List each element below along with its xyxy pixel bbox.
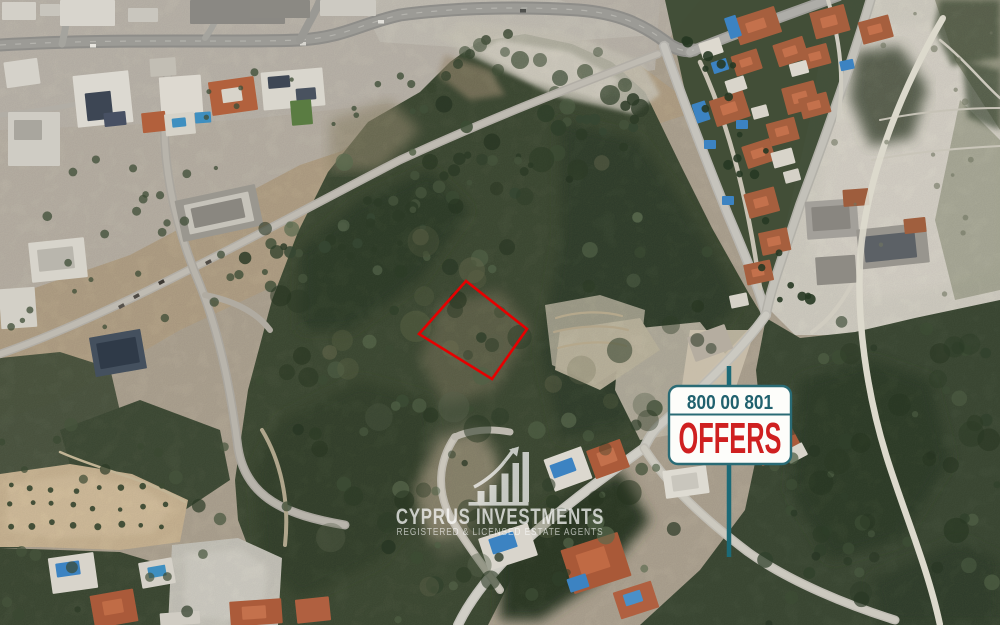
svg-text:OFFERS: OFFERS — [679, 413, 782, 463]
svg-text:REGISTERED & LICENSED ESTATE A: REGISTERED & LICENSED ESTATE AGENTS — [396, 526, 603, 538]
svg-text:800 00 801: 800 00 801 — [687, 392, 773, 415]
